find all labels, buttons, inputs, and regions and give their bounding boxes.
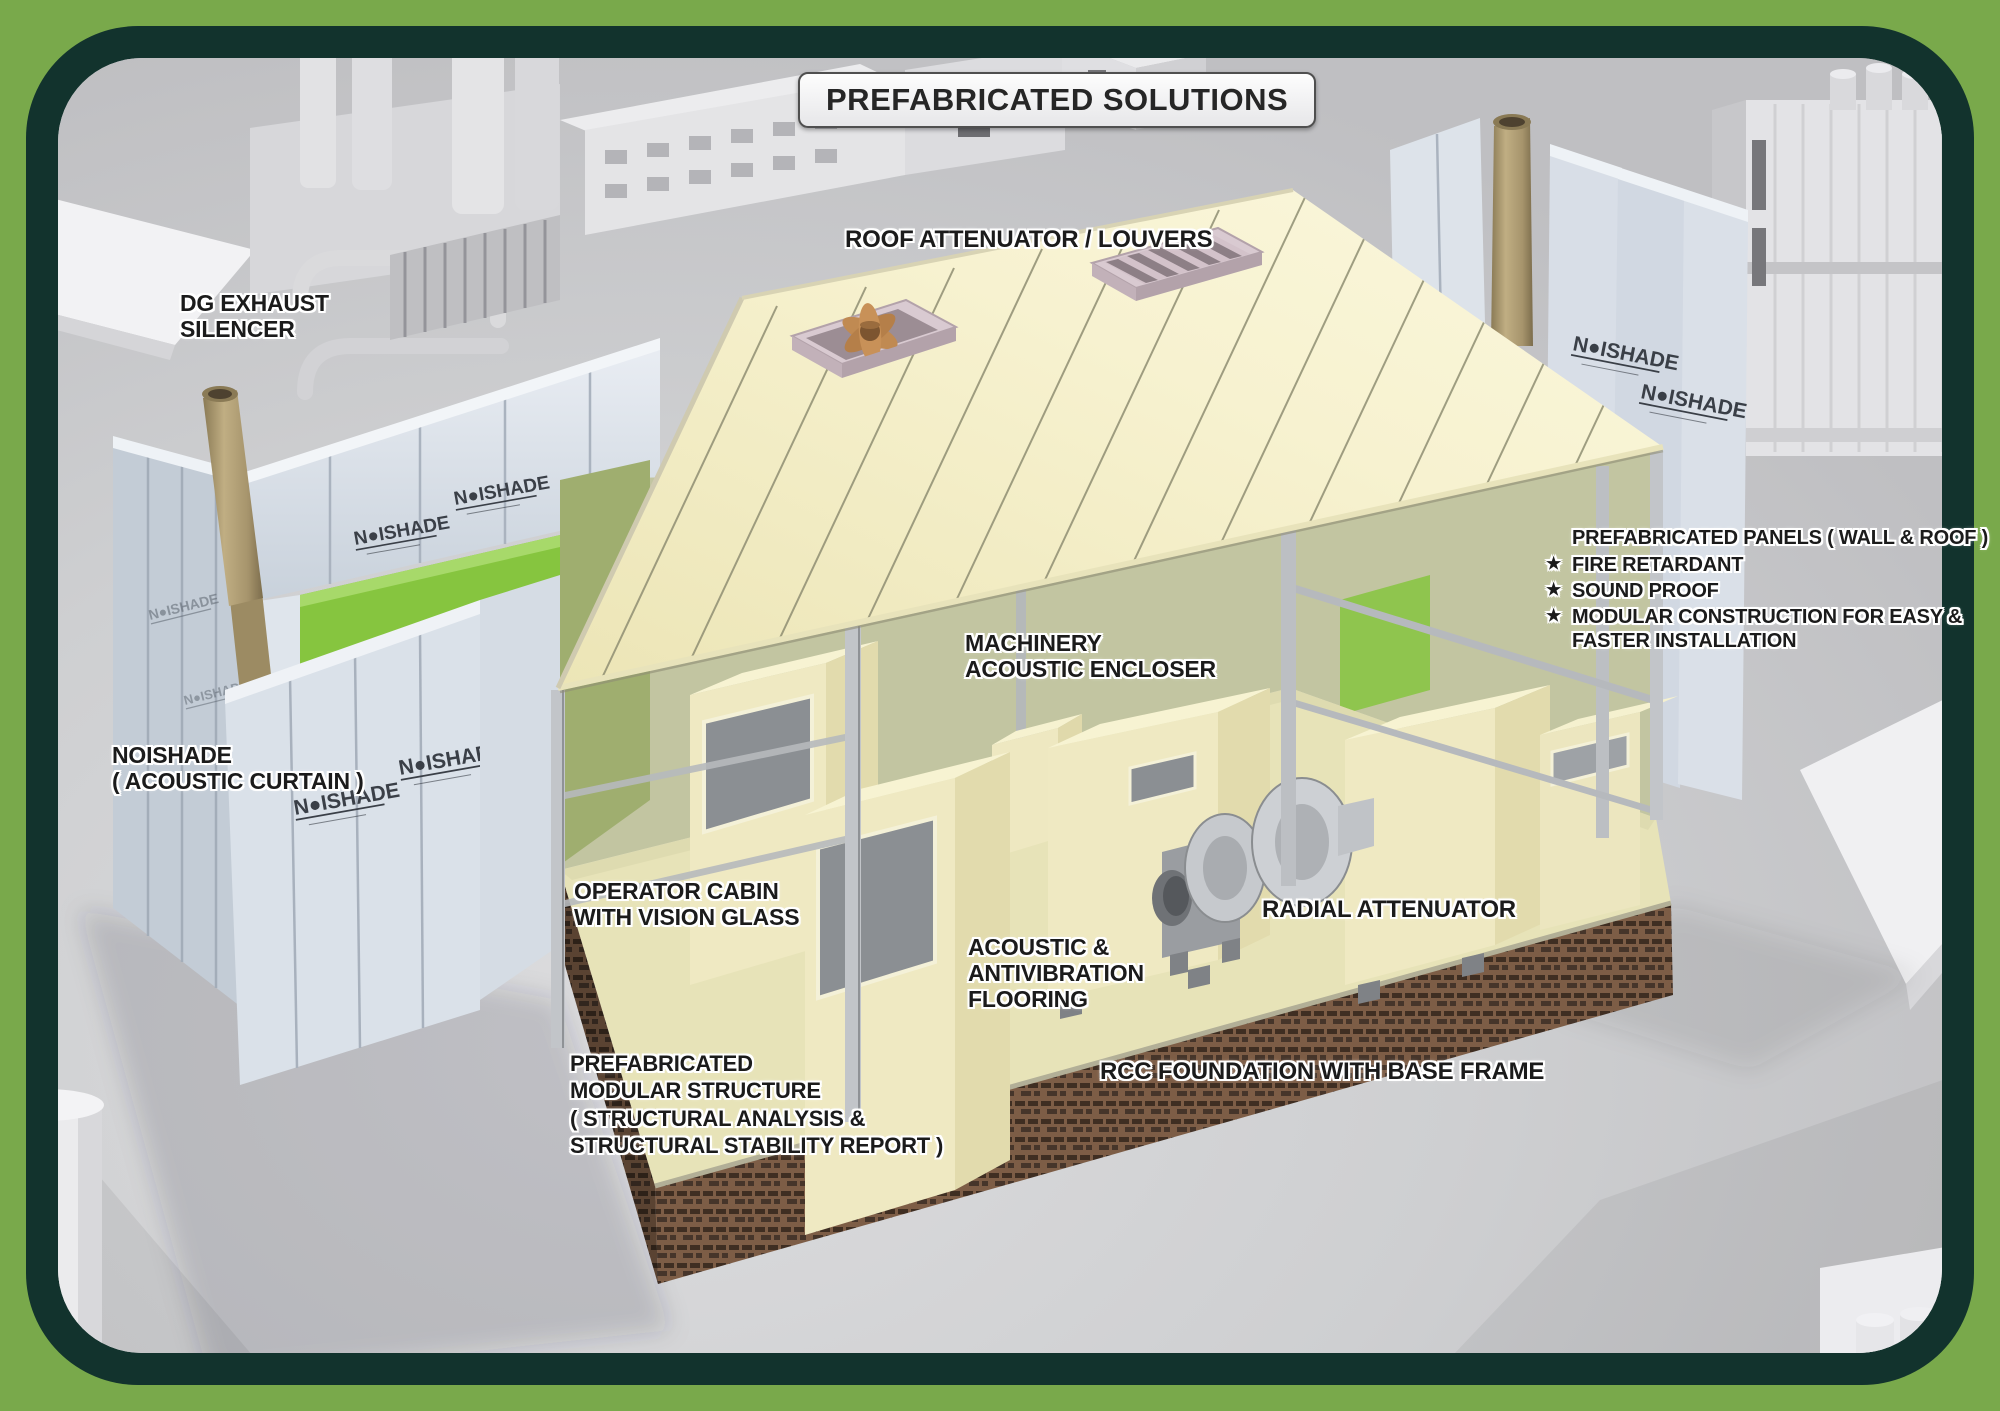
scene-viewport: N●ISHADE N●ISHADE N●ISHADE N●ISHADE bbox=[58, 58, 1942, 1353]
exhaust-chimney bbox=[1491, 114, 1533, 346]
poster-page: N●ISHADE N●ISHADE N●ISHADE N●ISHADE bbox=[0, 0, 2000, 1411]
scene-illustration: N●ISHADE N●ISHADE N●ISHADE N●ISHADE bbox=[58, 58, 1942, 1353]
